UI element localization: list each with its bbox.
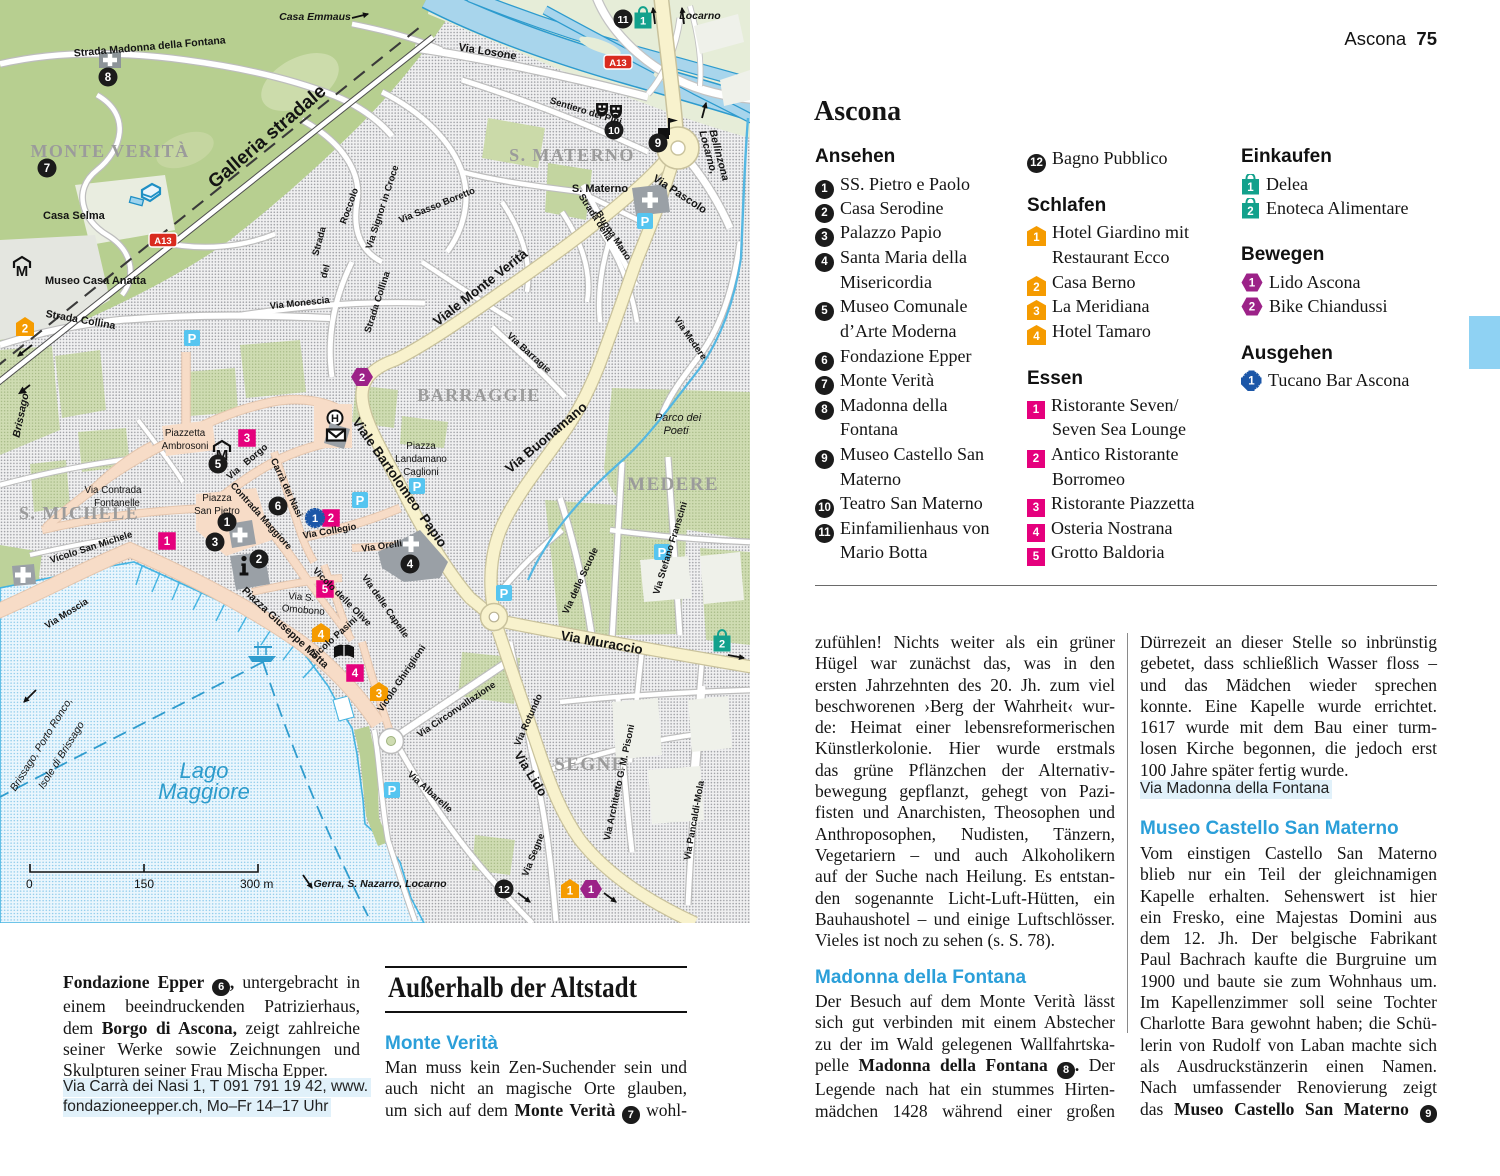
svg-text:Maggiore: Maggiore <box>158 779 250 804</box>
svg-text:1: 1 <box>224 517 231 529</box>
svg-text:Parco dei: Parco dei <box>655 412 702 424</box>
svg-text:Poeti: Poeti <box>663 425 689 437</box>
svg-text:1: 1 <box>312 513 318 525</box>
svg-text:A13: A13 <box>609 58 626 69</box>
svg-text:MONTE VERITÀ: MONTE VERITÀ <box>31 140 190 161</box>
svg-text:Piazza: Piazza <box>202 493 232 504</box>
svg-text:Caglioni: Caglioni <box>403 467 438 478</box>
svg-text:1: 1 <box>588 884 594 896</box>
svg-text:Casa Emmaus: Casa Emmaus <box>279 11 351 23</box>
svg-text:M: M <box>16 263 29 280</box>
svg-text:2: 2 <box>328 513 334 525</box>
svg-text:Gerra, S. Nazarro, Locarno: Gerra, S. Nazarro, Locarno <box>313 878 447 890</box>
svg-text:4: 4 <box>407 559 414 571</box>
svg-text:SEGNE: SEGNE <box>554 754 625 775</box>
svg-text:P: P <box>188 331 197 346</box>
svg-text:1: 1 <box>1249 278 1256 290</box>
svg-text:5: 5 <box>215 459 222 471</box>
svg-text:2: 2 <box>719 639 725 651</box>
svg-text:Via Contrada: Via Contrada <box>84 485 142 496</box>
svg-text:MEDERE: MEDERE <box>627 474 719 495</box>
svg-text:Landamano: Landamano <box>395 454 447 465</box>
svg-text:0: 0 <box>26 877 33 891</box>
svg-text:12: 12 <box>498 884 510 896</box>
svg-text:San Pietro: San Pietro <box>194 506 240 517</box>
svg-text:2: 2 <box>256 554 262 566</box>
svg-text:3: 3 <box>244 433 250 445</box>
svg-text:7: 7 <box>44 163 50 175</box>
svg-text:P: P <box>500 586 509 601</box>
svg-text:S. MATERNO: S. MATERNO <box>509 145 635 165</box>
svg-text:P: P <box>641 214 650 229</box>
svg-text:Ambrosoni: Ambrosoni <box>162 441 209 452</box>
svg-text:1: 1 <box>567 886 574 898</box>
svg-text:3: 3 <box>212 537 218 549</box>
svg-text:Casa Selma: Casa Selma <box>43 210 106 222</box>
svg-text:1: 1 <box>640 16 646 28</box>
svg-text:H: H <box>331 413 339 425</box>
svg-text:Museo Casa Anatta: Museo Casa Anatta <box>45 275 147 287</box>
svg-text:150: 150 <box>134 877 154 891</box>
svg-text:8: 8 <box>105 72 112 84</box>
svg-text:Piazza: Piazza <box>406 441 436 452</box>
svg-text:2: 2 <box>1247 206 1253 218</box>
svg-text:2: 2 <box>22 324 28 336</box>
svg-text:P: P <box>388 783 397 798</box>
svg-text:1: 1 <box>164 536 171 548</box>
svg-text:4: 4 <box>352 668 359 680</box>
svg-text:11: 11 <box>617 14 628 26</box>
svg-text:BARRAGGIE: BARRAGGIE <box>417 385 541 405</box>
svg-text:2: 2 <box>1249 302 1255 314</box>
svg-text:S. Materno: S. Materno <box>572 183 629 195</box>
svg-text:6: 6 <box>275 501 281 513</box>
svg-text:A13: A13 <box>154 236 171 247</box>
svg-text:Piazzetta: Piazzetta <box>165 428 206 439</box>
svg-text:Via S.: Via S. <box>288 591 315 604</box>
svg-text:300 m: 300 m <box>240 877 273 891</box>
svg-text:1: 1 <box>1248 376 1255 388</box>
svg-text:Fontanelle: Fontanelle <box>94 498 140 509</box>
svg-text:2: 2 <box>359 372 365 384</box>
svg-text:Locarno: Locarno <box>679 10 721 22</box>
svg-text:P: P <box>356 493 365 508</box>
svg-text:9: 9 <box>655 138 661 150</box>
svg-text:1: 1 <box>1247 182 1254 194</box>
